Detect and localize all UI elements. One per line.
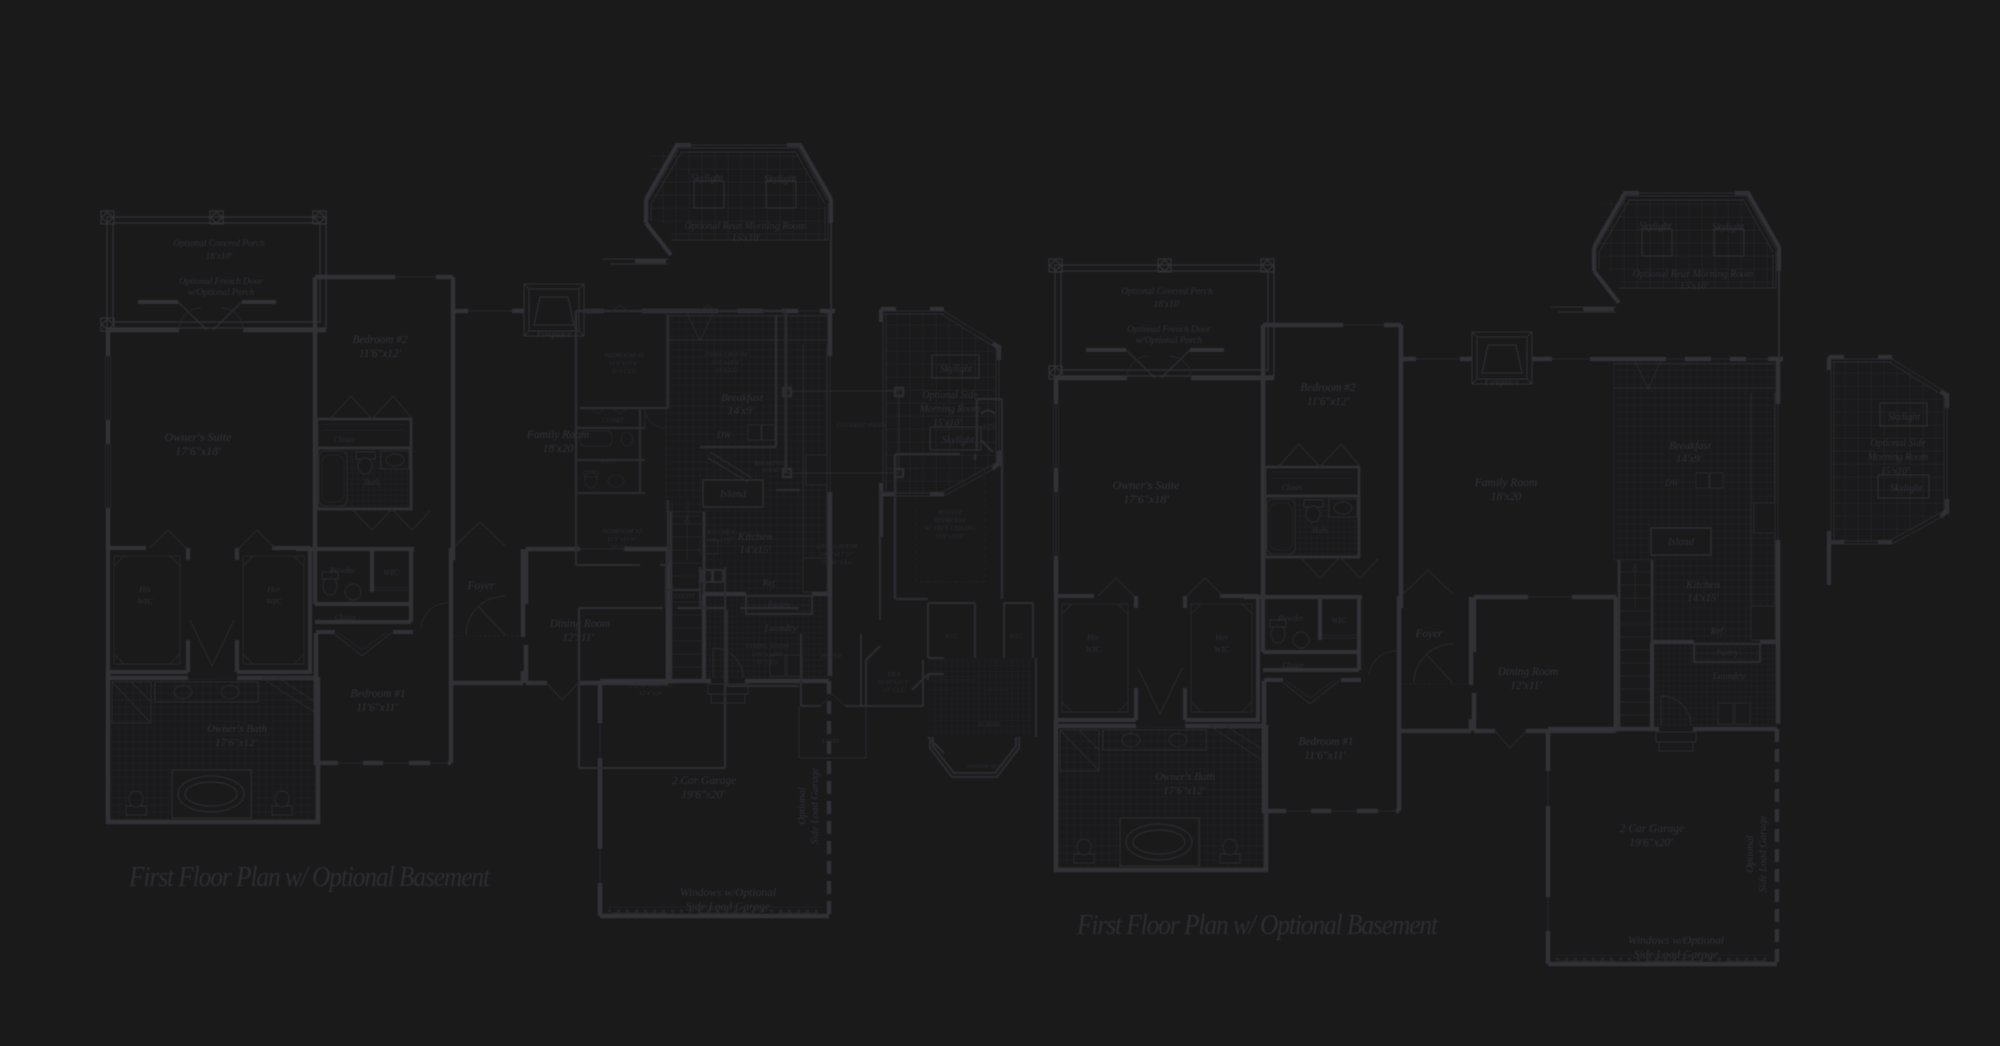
svg-text:DEN: DEN: [887, 671, 902, 678]
svg-text:10'10"x11'1": 10'10"x11'1": [877, 679, 911, 686]
svg-text:16'6"x16'6": 16'6"x16'6": [935, 533, 966, 540]
svg-text:10' CLG: 10' CLG: [756, 659, 778, 666]
svg-text:BEDROOM: BEDROOM: [934, 517, 966, 524]
svg-text:10' CLG: 10' CLG: [611, 544, 633, 551]
svg-text:11'5"x11'0": 11'5"x11'0": [607, 536, 637, 543]
svg-text:FOYER: FOYER: [820, 653, 841, 660]
svg-text:BEDROOM #3: BEDROOM #3: [604, 352, 644, 359]
svg-text:12'4"x20': 12'4"x20': [639, 690, 664, 697]
svg-text:10'6"x12'6": 10'6"x12'6": [752, 651, 783, 658]
svg-text:M. BATH: M. BATH: [977, 722, 1001, 728]
svg-text:10' CLG: 10' CLG: [715, 367, 737, 374]
svg-text:W.I.C.: W.I.C.: [1010, 634, 1025, 640]
svg-text:13'6"x17'11": 13'6"x17'11": [820, 551, 854, 558]
svg-text:10'x12'6": 10'x12'6": [709, 537, 734, 544]
svg-text:BATH: BATH: [601, 459, 616, 465]
svg-text:BREAKFAST: BREAKFAST: [754, 461, 786, 467]
svg-text:BATH: BATH: [982, 424, 997, 430]
svg-text:1 CAR GARAGE: 1 CAR GARAGE: [629, 682, 673, 689]
svg-text:WINDOW SEAT: WINDOW SEAT: [967, 764, 1004, 770]
svg-text:W.I.C.: W.I.C.: [945, 634, 960, 640]
svg-text:11'3"x13'1": 11'3"x13'1": [609, 360, 639, 367]
svg-text:KITCHEN: KITCHEN: [706, 529, 735, 536]
svg-text:UTILITY: UTILITY: [673, 594, 695, 600]
svg-text:MASTER: MASTER: [937, 509, 962, 516]
svg-text:NOOK: NOOK: [761, 468, 780, 474]
svg-text:LIVING ROOM: LIVING ROOM: [815, 543, 858, 550]
svg-text:10'-11' CLG: 10'-11' CLG: [821, 559, 853, 566]
svg-text:FAMILY ROOM: FAMILY ROOM: [704, 351, 748, 358]
svg-text:W/ TREY CEILING: W/ TREY CEILING: [925, 525, 976, 532]
svg-text:11'0 CLG: 11'0 CLG: [612, 368, 637, 375]
svg-text:BEDROOM #2: BEDROOM #2: [602, 528, 642, 535]
svg-text:ENTRY: ENTRY: [821, 739, 841, 745]
svg-text:CLOSET: CLOSET: [602, 418, 624, 424]
svg-text:15'6"x18'8": 15'6"x18'8": [711, 359, 742, 366]
svg-text:DINING ROOM: DINING ROOM: [745, 643, 789, 650]
svg-text:10' CLG: 10' CLG: [883, 687, 905, 694]
svg-text:COVERED PATIO: COVERED PATIO: [837, 422, 886, 429]
